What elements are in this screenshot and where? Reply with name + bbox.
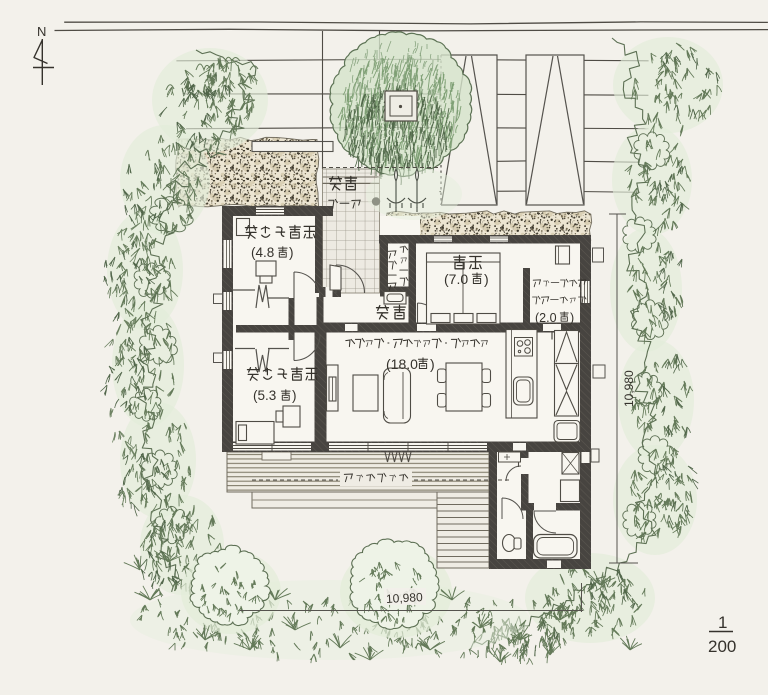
svg-text:): ) <box>570 311 574 325</box>
svg-text:10,980: 10,980 <box>386 590 424 606</box>
svg-text:(5.3: (5.3 <box>253 388 276 403</box>
svg-text:200: 200 <box>708 637 736 656</box>
svg-text:N: N <box>37 24 46 39</box>
svg-text:): ) <box>430 356 435 372</box>
svg-text:): ) <box>289 245 294 260</box>
svg-text:1: 1 <box>718 613 727 632</box>
svg-text:(18.0: (18.0 <box>386 356 418 372</box>
svg-text:): ) <box>292 388 297 403</box>
svg-text:): ) <box>484 271 489 287</box>
svg-text:10,980: 10,980 <box>622 370 636 407</box>
svg-text:(7.0: (7.0 <box>444 271 468 287</box>
svg-text:(2.0: (2.0 <box>535 311 557 325</box>
svg-text:(4.8: (4.8 <box>251 245 274 260</box>
